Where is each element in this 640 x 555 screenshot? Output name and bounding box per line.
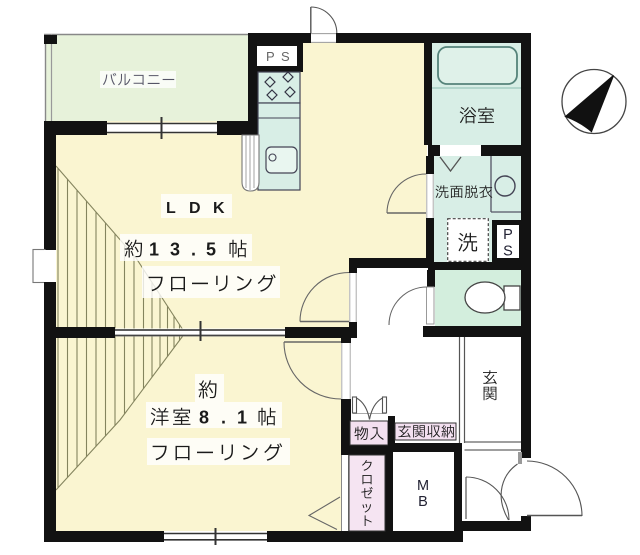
svg-text:P: P	[266, 49, 275, 64]
svg-text:8: 8	[199, 408, 209, 428]
svg-text:B: B	[418, 494, 428, 510]
svg-text:1: 1	[237, 408, 247, 428]
svg-text:M: M	[417, 478, 429, 494]
svg-text:1: 1	[149, 240, 159, 260]
svg-text:.: .	[191, 240, 196, 260]
svg-text:5: 5	[206, 240, 216, 260]
svg-text:3: 3	[170, 240, 180, 260]
svg-text:D: D	[189, 200, 201, 217]
svg-text:P: P	[503, 227, 513, 243]
svg-text:K: K	[213, 200, 225, 217]
svg-text:L: L	[166, 200, 176, 217]
svg-text:S: S	[503, 244, 513, 260]
svg-text:.: .	[221, 408, 226, 428]
svg-text:S: S	[281, 49, 290, 64]
